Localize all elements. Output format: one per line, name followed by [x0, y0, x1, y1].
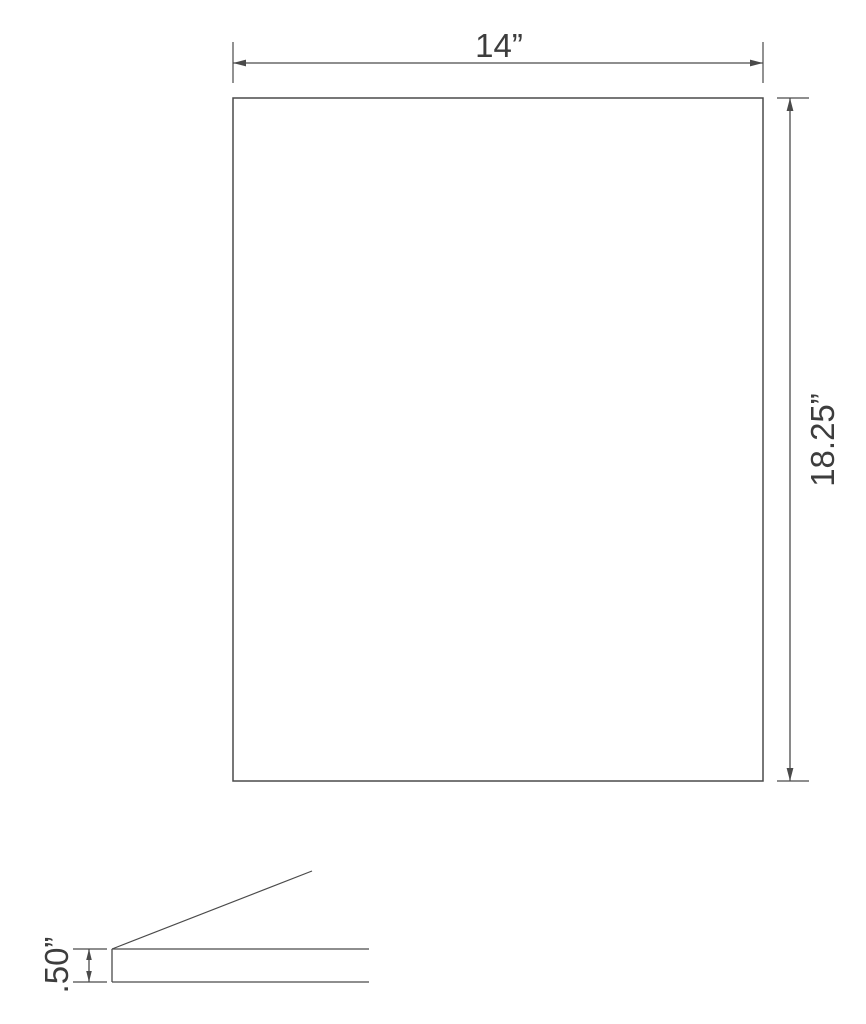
thickness-arrow-up-icon: [86, 949, 92, 960]
side-profile-angled-lid-line: [112, 871, 312, 949]
thickness-dimension: .50”: [38, 937, 107, 994]
panel-dimension-drawing: 14” 18.25” .50”: [0, 0, 866, 1024]
width-dimension-label: 14”: [475, 27, 523, 64]
side-profile-view: [112, 871, 369, 982]
thickness-dimension-label: .50”: [38, 937, 75, 994]
thickness-arrow-down-icon: [86, 971, 92, 982]
height-arrow-down-icon: [787, 768, 794, 781]
technical-drawing-canvas: 14” 18.25” .50”: [0, 0, 866, 1024]
height-dimension-label: 18.25”: [804, 393, 841, 487]
width-arrow-right-icon: [750, 60, 763, 67]
panel-front-view: [233, 98, 763, 781]
width-arrow-left-icon: [233, 60, 246, 67]
width-dimension: 14”: [233, 27, 763, 83]
height-dimension: 18.25”: [777, 98, 841, 781]
height-arrow-up-icon: [787, 98, 794, 111]
